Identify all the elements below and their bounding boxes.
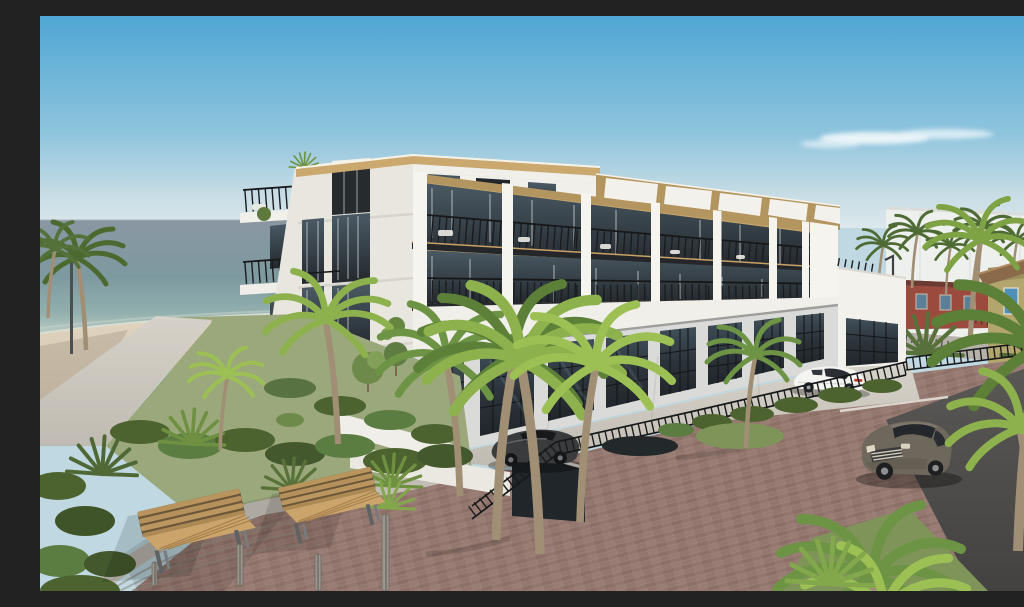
palm-grass-circle [696, 423, 784, 449]
wing-roof-railing [838, 262, 874, 268]
rendering-root: Aerial rendering of a modern white beach… [40, 16, 1024, 591]
dark-planter-wall [602, 436, 678, 456]
garage-wing [838, 262, 906, 368]
headlight-right [901, 444, 910, 449]
scene-canvas [40, 16, 1024, 591]
terrace-plant [257, 207, 271, 221]
